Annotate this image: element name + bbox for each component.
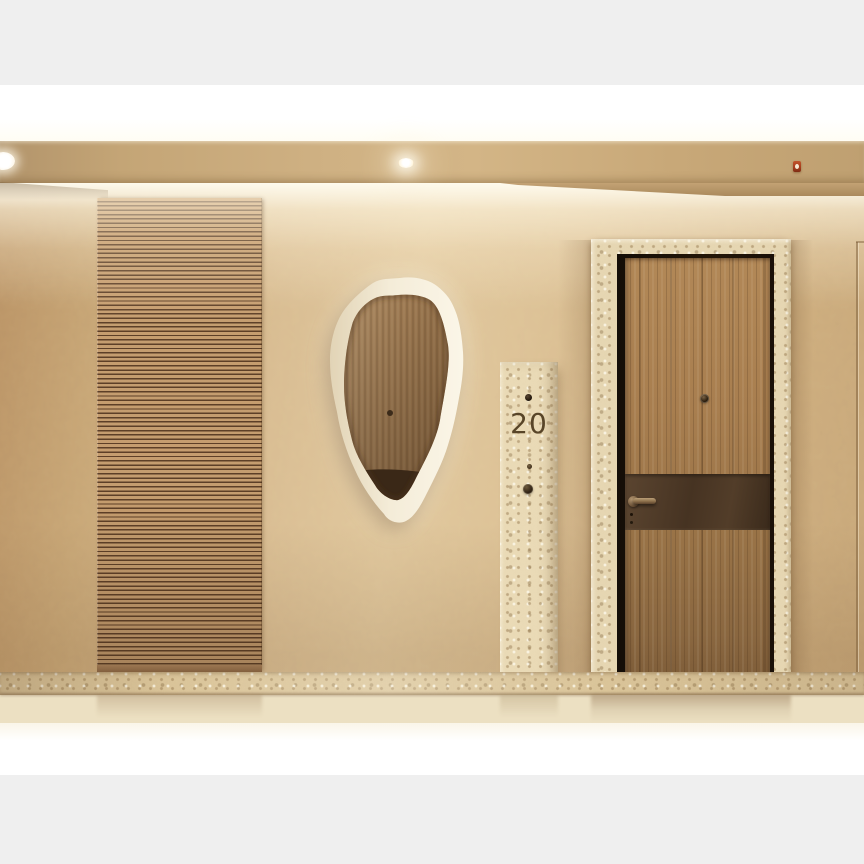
wall-shadow bbox=[558, 240, 591, 672]
cove-light-glow-band bbox=[0, 85, 864, 141]
wall-shadow bbox=[791, 240, 813, 672]
organic-mirror bbox=[316, 270, 474, 534]
door-floor-reflection bbox=[591, 695, 791, 722]
doorbell-button bbox=[523, 484, 533, 494]
plate-screw-icon bbox=[527, 464, 532, 469]
bottom-letterbox-white bbox=[0, 723, 864, 775]
downlight-icon bbox=[398, 158, 414, 168]
top-letterbox-band bbox=[0, 0, 864, 85]
lock-screw-icon bbox=[630, 513, 633, 516]
wood-slat-panel bbox=[97, 198, 262, 673]
door-handle bbox=[633, 498, 656, 504]
bottom-letterbox-band bbox=[0, 775, 864, 864]
entrance-door bbox=[625, 258, 770, 686]
lock-screw-icon bbox=[630, 521, 633, 524]
wall-panel-joint bbox=[856, 242, 858, 673]
fire-sprinkler-icon bbox=[793, 161, 801, 172]
slat-floor-reflection bbox=[97, 695, 262, 717]
baseboard-lighting bbox=[0, 672, 864, 695]
corridor-rendering: 20 bbox=[0, 0, 864, 864]
ceiling-soffit-fascia bbox=[0, 141, 864, 183]
plate-floor-reflection bbox=[500, 695, 558, 717]
wall-panel-joint bbox=[856, 241, 864, 243]
peephole-icon bbox=[700, 394, 709, 403]
plate-light-icon bbox=[525, 394, 532, 401]
unit-number: 20 bbox=[500, 409, 558, 439]
